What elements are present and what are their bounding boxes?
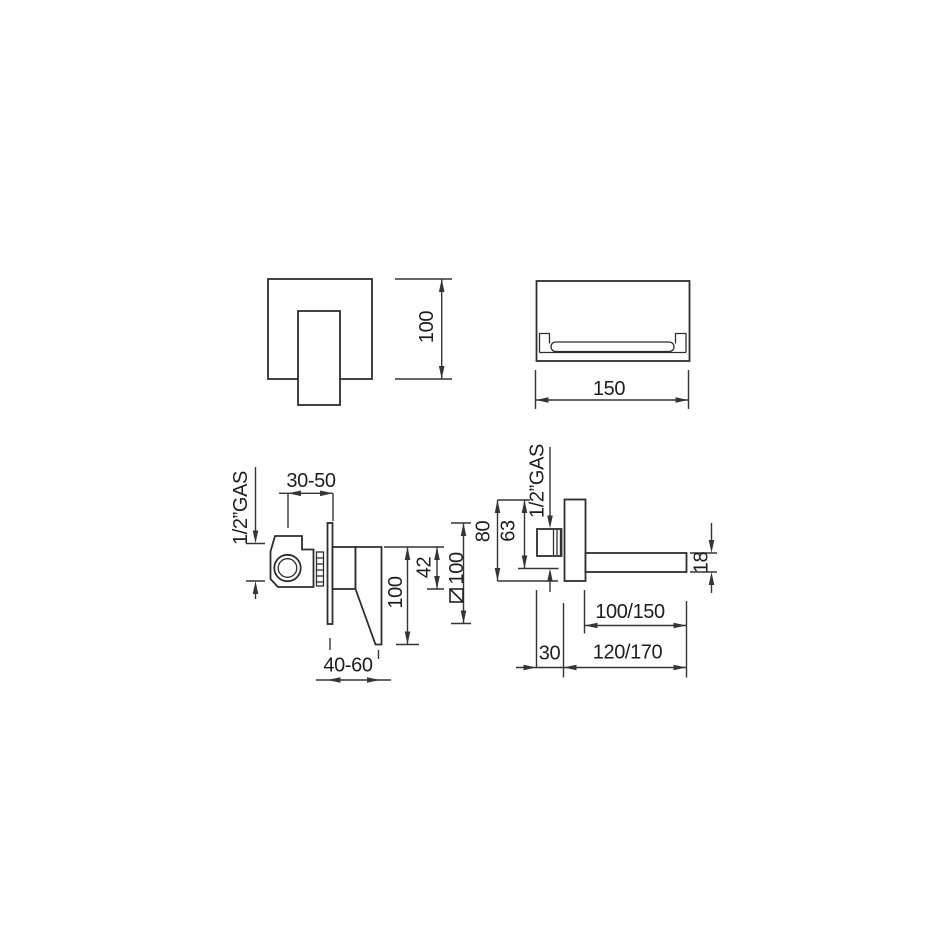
- spout-side-view: 1/2”GAS 80 63: [473, 444, 718, 678]
- svg-text:100: 100: [446, 552, 468, 584]
- spout-wall-plate: [565, 500, 586, 582]
- spout-reach-dimension: 100/150: [585, 601, 687, 628]
- thread-size-callout: 1/2”GAS: [230, 467, 265, 599]
- dim-label-spout-width: 150: [593, 378, 625, 400]
- dim-label-total-reach: 120/170: [593, 642, 663, 664]
- spout-arm: [586, 553, 687, 572]
- spout-thread-callout: 1/2”GAS: [527, 444, 553, 592]
- drawing-page: 100 150 1/2”GAS: [0, 0, 950, 950]
- dim-label-handle-length: 100: [385, 576, 407, 608]
- dim-label-spout-thickness: 18: [691, 552, 713, 574]
- spout-width-dimension: 150: [536, 370, 689, 409]
- wall-thread-section: [317, 552, 324, 586]
- dim-label-plate-height: 100: [416, 311, 438, 343]
- control-lever-side: [356, 547, 382, 645]
- dim-label-plate-size: 100: [446, 552, 468, 602]
- technical-drawing: 100 150 1/2”GAS: [0, 0, 950, 950]
- cartridge-housing: [333, 547, 356, 589]
- spout-body-front: [537, 281, 690, 361]
- mixer-valve-side-view: 1/2”GAS 30-50: [230, 467, 471, 683]
- threaded-inlet-stub: [537, 529, 562, 556]
- plate-height-dimension: 100: [395, 279, 452, 379]
- spout-front-view: 150: [536, 281, 690, 409]
- spout-thickness-dimension: 18: [690, 523, 717, 593]
- dim-label-inlet-offset: 63: [498, 520, 520, 542]
- control-plate-front-view: 100: [268, 279, 452, 405]
- recess-depth-dimension: 30-50: [279, 470, 336, 528]
- dim-label-cartridge-height: 42: [414, 557, 436, 579]
- total-reach-dimension: 30 120/170: [516, 642, 687, 671]
- dim-label-recess-depth: 30-50: [286, 470, 335, 492]
- dim-label-handle-depth: 40-60: [323, 655, 372, 677]
- dim-label-inlet-depth: 30: [539, 643, 561, 665]
- dim-label-spout-thread: 1/2”GAS: [527, 444, 549, 518]
- dim-label-valve-thread: 1/2”GAS: [230, 471, 252, 545]
- plate-size-dimension: 100: [446, 523, 471, 624]
- dim-label-spout-reach: 100/150: [595, 601, 665, 623]
- control-lever-front: [298, 311, 340, 405]
- dim-label-spout-plate-height: 80: [473, 521, 495, 543]
